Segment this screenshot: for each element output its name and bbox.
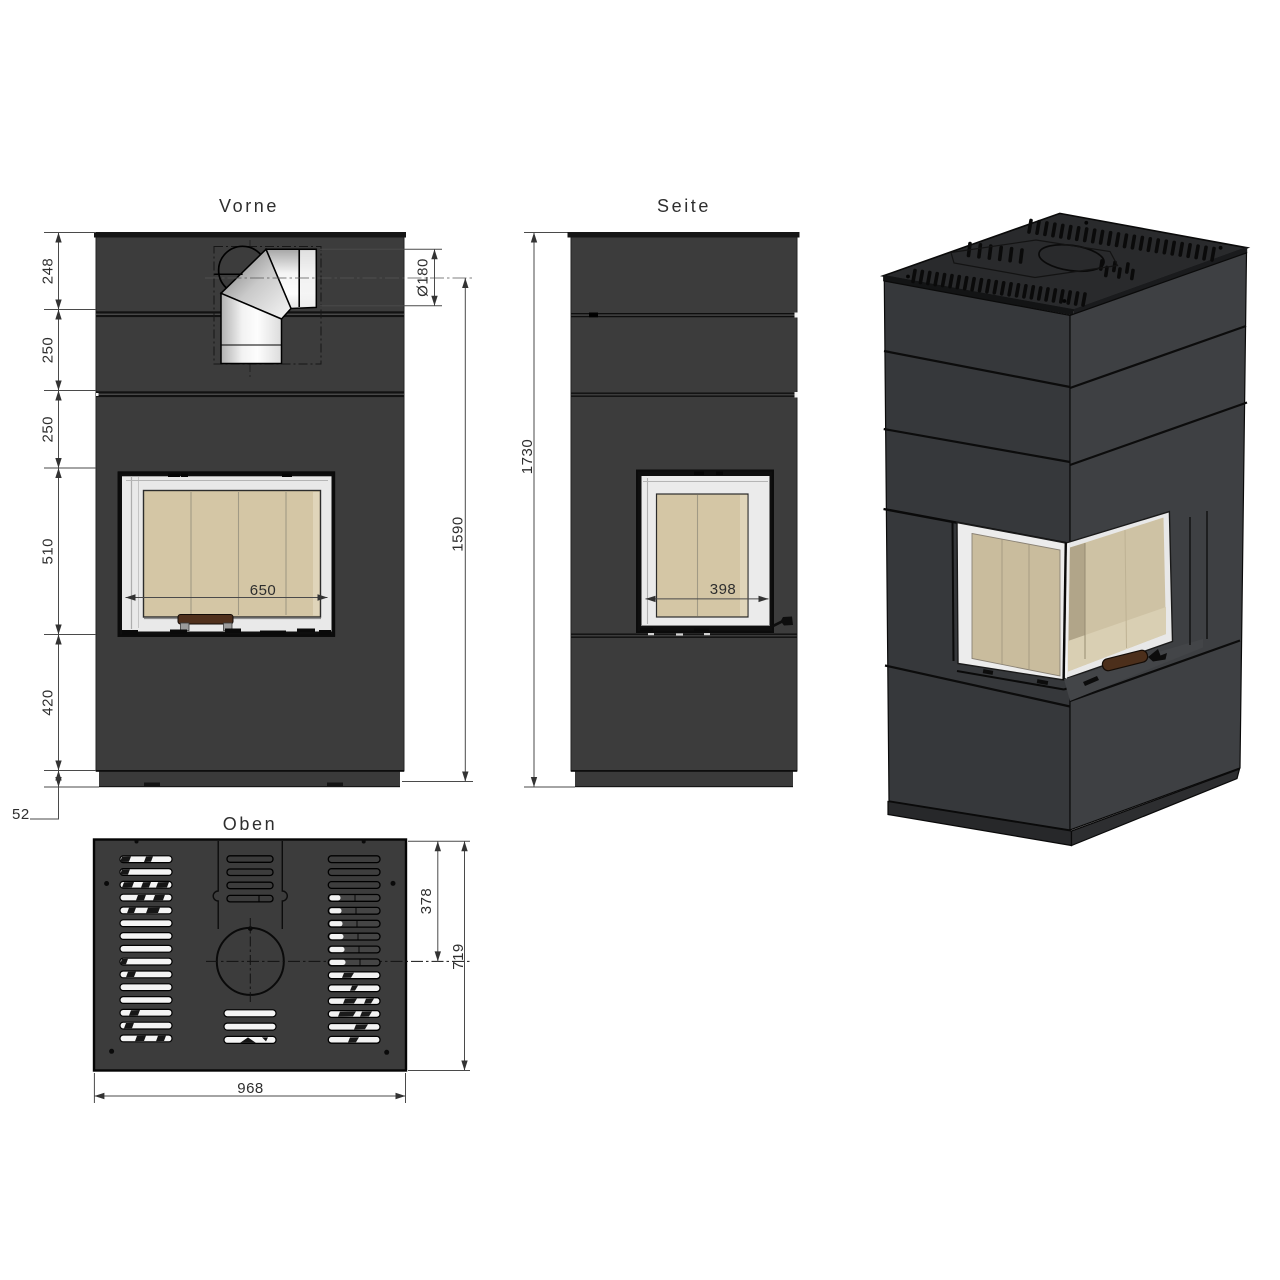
svg-text:719: 719 [450, 943, 467, 970]
svg-text:398: 398 [710, 581, 737, 598]
svg-text:1590: 1590 [450, 516, 467, 551]
svg-text:Vorne: Vorne [219, 196, 279, 216]
svg-text:250: 250 [40, 337, 57, 364]
svg-text:378: 378 [418, 888, 435, 915]
svg-text:420: 420 [40, 689, 57, 716]
svg-text:Seite: Seite [657, 196, 711, 216]
svg-text:968: 968 [237, 1080, 264, 1097]
svg-text:650: 650 [250, 582, 277, 599]
svg-text:52: 52 [12, 806, 30, 823]
svg-text:1730: 1730 [519, 439, 536, 474]
svg-text:510: 510 [40, 538, 57, 565]
svg-text:Ø180: Ø180 [415, 258, 432, 297]
svg-text:248: 248 [40, 258, 57, 285]
svg-text:Oben: Oben [223, 814, 277, 834]
svg-text:250: 250 [40, 416, 57, 443]
